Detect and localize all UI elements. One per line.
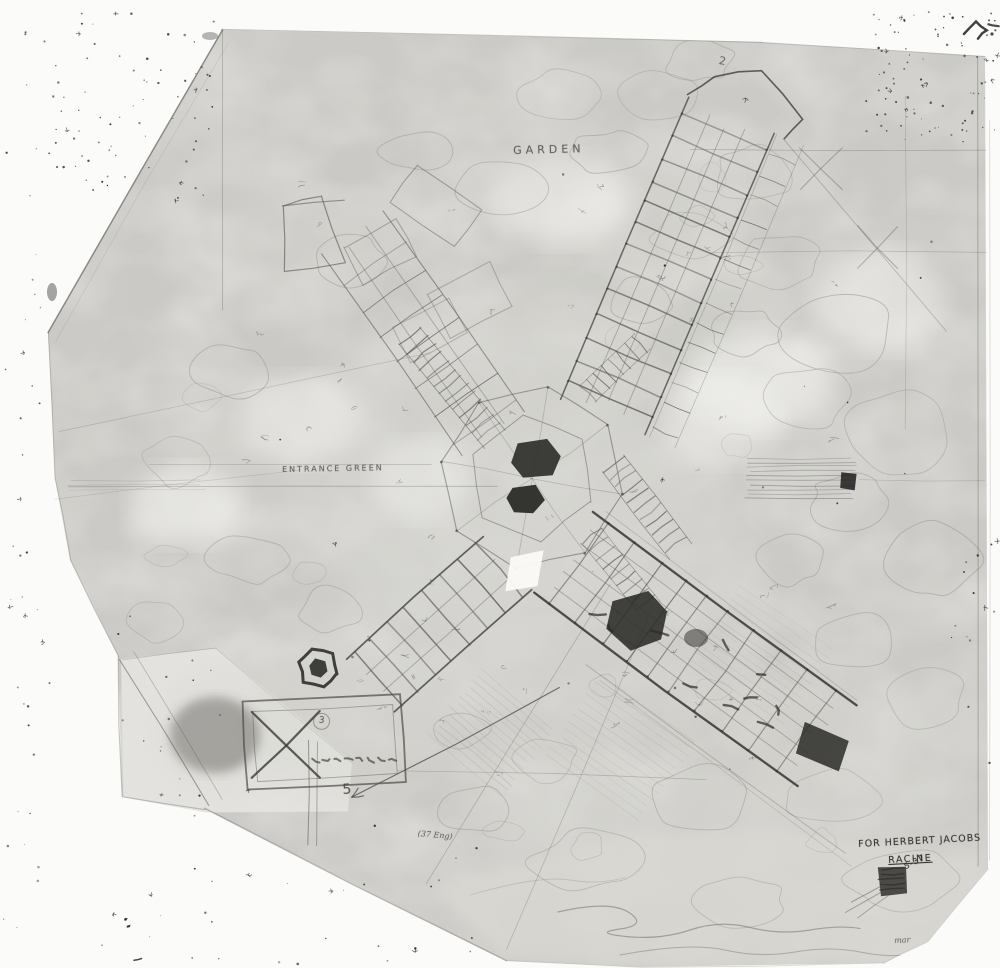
label-entrance-green: ENTRANCE GREEN [282,464,384,475]
label-station-number: 5 [342,782,352,798]
label-corner-note: mar [894,936,911,946]
sketch-canvas [0,0,1000,968]
sheet-scan: GARDEN ENTRANCE GREEN 2 5 3 (37 Eng) mar… [0,0,1000,968]
label-garden: GARDEN [513,143,585,157]
